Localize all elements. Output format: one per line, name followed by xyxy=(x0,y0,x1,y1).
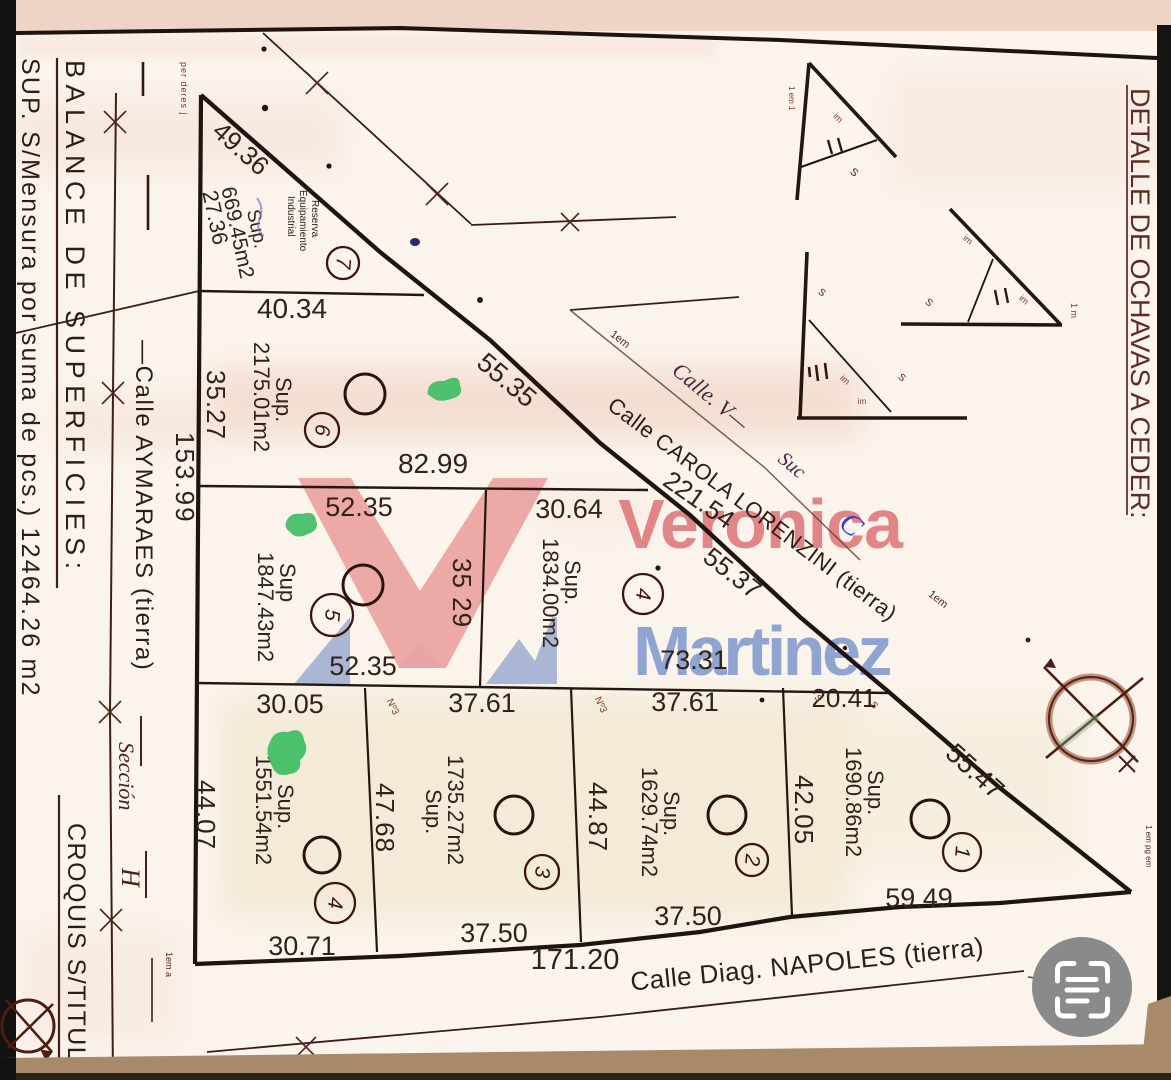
svg-text:SUP. S/Mensura por suma de pcs: SUP. S/Mensura por suma de pcs.) 12464.2… xyxy=(16,58,44,698)
svg-text:35.27: 35.27 xyxy=(201,370,231,440)
svg-text:37.50: 37.50 xyxy=(654,901,722,931)
svg-text:35 29: 35 29 xyxy=(447,558,477,628)
svg-text:Industrial: Industrial xyxy=(285,196,296,237)
svg-text:1em a: 1em a xyxy=(164,952,174,977)
svg-text:52.35: 52.35 xyxy=(325,492,393,522)
svg-text:DETALLE DE OCHAVAS A CEDER:: DETALLE DE OCHAVAS A CEDER: xyxy=(1125,88,1155,519)
svg-text:1 em 1: 1 em 1 xyxy=(787,86,796,111)
svg-text:47.68: 47.68 xyxy=(370,783,400,853)
svg-text:Sección: Sección xyxy=(114,742,139,810)
svg-text:1834.00m2: 1834.00m2 xyxy=(538,538,563,648)
svg-text:40.34: 40.34 xyxy=(257,293,327,324)
svg-text:Sup.: Sup. xyxy=(863,770,888,815)
svg-text:52.35: 52.35 xyxy=(329,651,397,681)
svg-text:171.20: 171.20 xyxy=(531,944,620,976)
svg-text:1 em pg em: 1 em pg em xyxy=(1144,825,1153,868)
svg-text:153.99: 153.99 xyxy=(170,432,200,524)
svg-text:42.05: 42.05 xyxy=(789,775,819,845)
svg-text:44.87: 44.87 xyxy=(583,782,613,852)
svg-text:—Calle AYMARAES (tierra): —Calle AYMARAES (tierra) xyxy=(130,340,157,671)
svg-text:Sup.: Sup. xyxy=(659,791,684,836)
svg-text:30.05: 30.05 xyxy=(256,689,324,719)
svg-text:4: 4 xyxy=(631,587,655,601)
svg-text:5: 5 xyxy=(320,608,344,622)
svg-text:Sup: Sup xyxy=(275,563,300,602)
svg-text:2: 2 xyxy=(740,852,764,867)
svg-text:37.61: 37.61 xyxy=(651,687,719,717)
svg-text:6: 6 xyxy=(310,423,334,437)
svg-text:CROQUIS S/TITULO: CROQUIS S/TITULO xyxy=(62,823,90,1080)
svg-text:4: 4 xyxy=(323,896,347,910)
svg-text:im: im xyxy=(858,397,867,406)
svg-text:Sup.: Sup. xyxy=(271,377,296,422)
svg-text:1629.74m2: 1629.74m2 xyxy=(637,767,662,877)
svg-text:82.99: 82.99 xyxy=(398,448,468,479)
svg-text:37.61: 37.61 xyxy=(448,688,516,718)
svg-text:1847.43m2: 1847.43m2 xyxy=(253,552,278,662)
svg-text:30.71: 30.71 xyxy=(268,931,336,961)
svg-text:1551.54m2: 1551.54m2 xyxy=(251,755,276,865)
svg-text:73.31: 73.31 xyxy=(660,645,728,675)
svg-text:44.07: 44.07 xyxy=(191,780,221,850)
svg-text:2175.01m2: 2175.01m2 xyxy=(249,342,274,452)
svg-text:37.50: 37.50 xyxy=(460,918,528,948)
svg-text:Sup.: Sup. xyxy=(560,560,585,605)
svg-text:30.64: 30.64 xyxy=(535,494,603,524)
svg-text:Equipamiento: Equipamiento xyxy=(297,190,308,252)
svg-text:Sup.: Sup. xyxy=(421,789,446,834)
svg-text:1 m: 1 m xyxy=(1069,303,1079,318)
svg-text:Sup.: Sup. xyxy=(273,784,298,829)
svg-text:1690.86m2: 1690.86m2 xyxy=(841,747,866,857)
svg-text:H: H xyxy=(116,867,145,888)
svg-text:Reserva: Reserva xyxy=(309,200,320,238)
svg-text:per deres j: per deres j xyxy=(179,62,189,116)
svg-text:59.49: 59.49 xyxy=(885,883,953,913)
svg-text:3: 3 xyxy=(530,865,554,879)
svg-text:1: 1 xyxy=(950,845,974,859)
